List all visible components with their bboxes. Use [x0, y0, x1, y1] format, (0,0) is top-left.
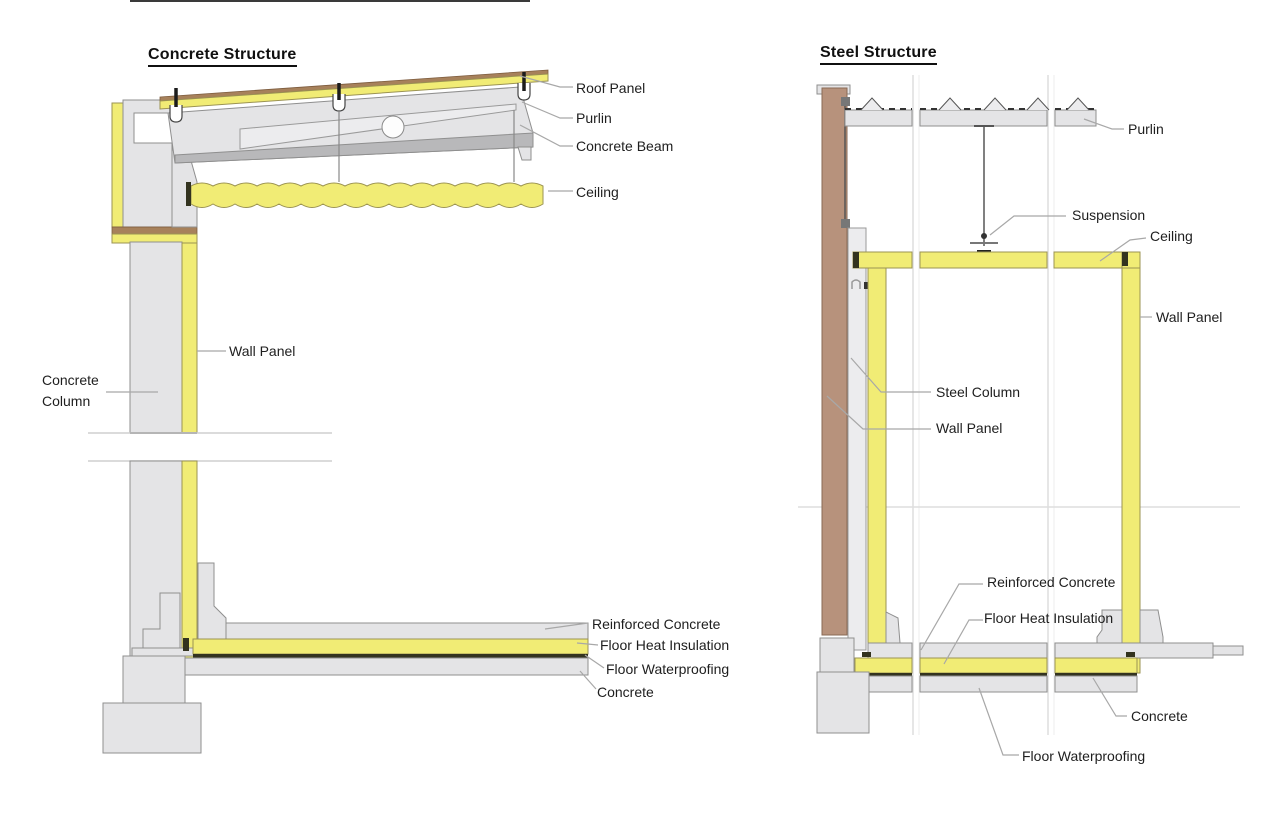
steel-column [848, 228, 866, 650]
label-wall-panel: Wall Panel [229, 344, 295, 359]
ceiling-panel [1054, 252, 1122, 268]
label-concrete: Concrete [597, 685, 654, 700]
label-steel-reinforced-concrete: Reinforced Concrete [987, 575, 1115, 590]
steel-ceiling [853, 252, 1140, 268]
label-steel-concrete: Concrete [1131, 709, 1188, 724]
footing-lower [103, 703, 201, 753]
steel-structure-title: Steel Structure [820, 44, 937, 65]
floor-concrete [920, 676, 1047, 692]
concrete-structure-drawing [88, 70, 604, 753]
label-steel-floor-waterproofing: Floor Waterproofing [1022, 749, 1145, 764]
steel-structure-drawing [798, 75, 1243, 755]
label-floor-waterproofing: Floor Waterproofing [606, 662, 729, 677]
label-steel-purlin: Purlin [1128, 122, 1164, 137]
suspension-assembly [968, 126, 1000, 267]
floor-upstand [886, 612, 900, 643]
seam-bump [939, 98, 961, 110]
slab-extension [1213, 646, 1243, 655]
corner-seal [183, 638, 189, 651]
concrete-column-upper [130, 242, 182, 433]
flashing-band [112, 227, 197, 234]
bracket [841, 219, 850, 228]
label-steel-floor-heat-insulation: Floor Heat Insulation [984, 611, 1113, 626]
bracket [841, 97, 850, 106]
steel-purlins [845, 98, 1096, 126]
ceiling-end-cap [853, 252, 859, 268]
parapet-concrete [123, 100, 172, 227]
column-base [820, 638, 854, 672]
floor-reinforced-concrete [920, 643, 1047, 658]
corner-seal [1126, 652, 1135, 657]
corner-seal [862, 652, 871, 657]
seam-bump [1067, 98, 1089, 110]
floor-reinforced-concrete [226, 623, 588, 639]
interior-wall-panel-left [868, 268, 886, 673]
seam-bump [1027, 98, 1049, 110]
diagram-canvas: Concrete Structure Steel Structure Roof … [0, 0, 1268, 819]
footing [817, 672, 869, 733]
wall-panel-lower [182, 461, 197, 660]
floor-concrete [185, 658, 588, 675]
label-steel-column: Steel Column [936, 385, 1020, 400]
label-suspension: Suspension [1072, 208, 1145, 223]
label-steel-ceiling: Ceiling [1150, 229, 1193, 244]
purlin-bar [1055, 110, 1096, 126]
footing-upper [123, 656, 185, 703]
beam-duct-hole [382, 116, 404, 138]
label-ceiling: Ceiling [576, 185, 619, 200]
floor-upstand [1140, 610, 1163, 643]
floor-heat-insulation [1055, 658, 1137, 673]
ceiling-panel [920, 252, 1047, 268]
cropped-line-artifact [130, 0, 530, 2]
floor-waterproofing-layer [193, 654, 588, 658]
ceiling-corner-seal [1122, 252, 1128, 266]
label-floor-heat-insulation: Floor Heat Insulation [600, 638, 729, 653]
label-reinforced-concrete: Reinforced Concrete [592, 617, 720, 632]
label-roof-panel: Roof Panel [576, 81, 645, 96]
purlin-bar [920, 110, 1047, 126]
label-purlin: Purlin [576, 111, 612, 126]
floor-reinforced-concrete [868, 643, 912, 658]
seam-bump [984, 98, 1006, 110]
exterior-wall-panel [822, 88, 847, 635]
rod-nut [981, 233, 987, 239]
floor-heat-insulation [855, 658, 912, 673]
label-concrete-column: Concrete Column [42, 370, 116, 412]
ceiling-batt [191, 183, 543, 208]
floor-heat-insulation [920, 658, 1047, 673]
label-wall-panel-right: Wall Panel [1156, 310, 1222, 325]
purlin-bar [845, 110, 912, 126]
label-concrete-beam: Concrete Beam [576, 139, 673, 154]
purlin-clip [170, 105, 182, 122]
parapet-panel [112, 103, 123, 227]
ceiling-panel [853, 252, 912, 268]
interior-wall-panel-right [1122, 268, 1140, 673]
floor-heat-insulation [193, 639, 588, 654]
ceiling-end-cap [186, 182, 191, 206]
beam-end-foot [518, 147, 531, 160]
wall-panel-upper [182, 243, 197, 433]
concrete-ceiling [186, 182, 543, 208]
label-wall-panel-left: Wall Panel [936, 421, 1002, 436]
concrete-structure-title: Concrete Structure [148, 46, 297, 67]
seam-bump [861, 98, 883, 110]
